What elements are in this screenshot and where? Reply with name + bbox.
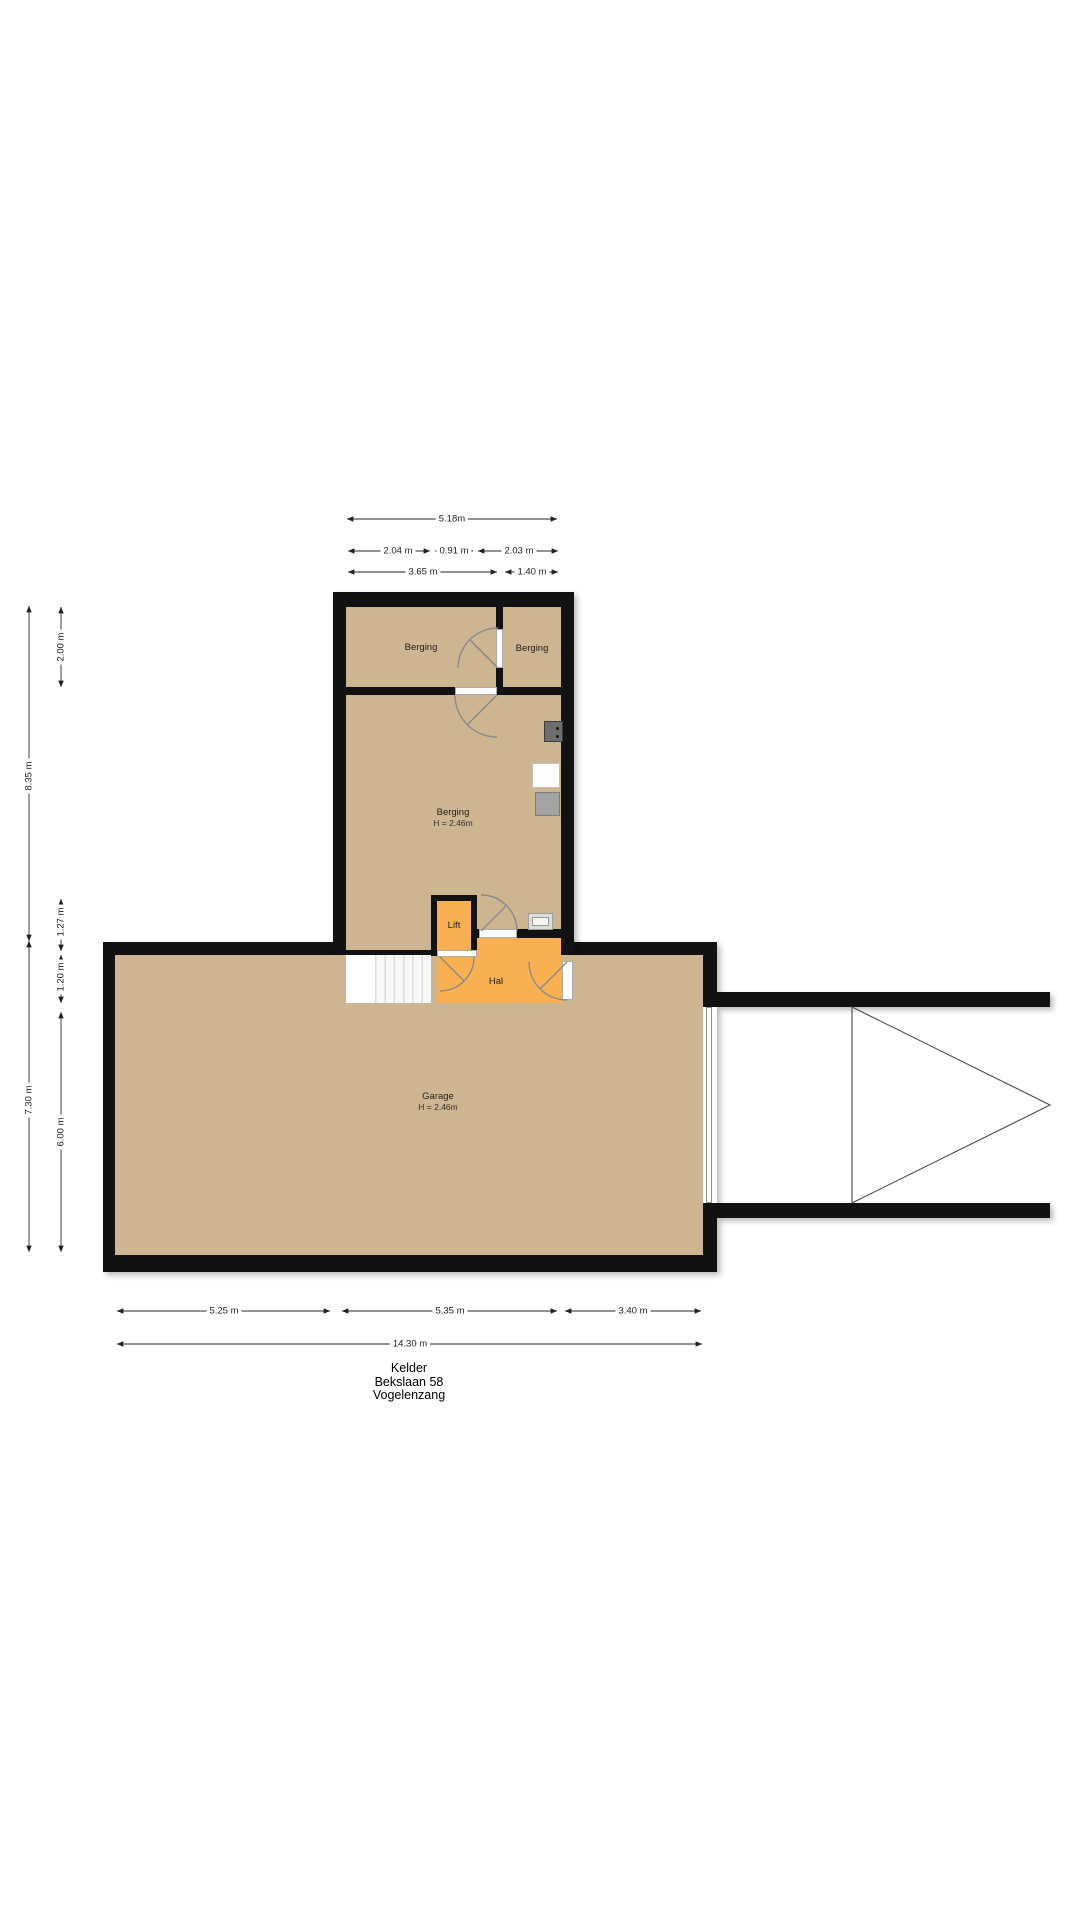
dim-top-c: 2.03 m [501, 546, 536, 557]
door-berging-to-hal [479, 929, 517, 938]
garage-door-panel [706, 1007, 712, 1203]
driveway-wall-top [717, 992, 1050, 1007]
door-lift [437, 950, 477, 957]
room-name: Berging [433, 808, 472, 818]
dim-left-berging-top: 2.00 m [56, 629, 67, 664]
driveway-slope-icon [852, 1007, 1050, 1203]
room-label-garage: Garage H = 2.46m [418, 1092, 457, 1112]
room-label-berging-top-right: Berging [516, 644, 549, 654]
dim-bottom-b: 5.35 m [432, 1306, 467, 1317]
floor-plan-page: 5.18m 2.04 m 0.91 m 2.03 m 3.65 m 1.40 m… [0, 0, 1080, 1920]
dim-left-tower: 8.35 m [24, 758, 35, 793]
dim-top-e: 1.40 m [514, 567, 549, 578]
room-label-berging-top-left: Berging [405, 643, 438, 653]
dim-left-garage-inner: 6.00 m [56, 1114, 67, 1149]
door-hal-right [562, 961, 573, 1000]
dim-bottom-c: 3.40 m [615, 1306, 650, 1317]
plan-title: Kelder Bekslaan 58 Vogelenzang [373, 1362, 445, 1403]
panel-dot [556, 727, 559, 730]
panel-dot [556, 735, 559, 738]
hal-lower-strip-floor [437, 955, 477, 1003]
sink-icon [528, 913, 553, 930]
hal-floor [477, 938, 561, 1003]
room-name: Hal [489, 977, 503, 987]
room-name: Berging [516, 644, 549, 654]
sink-basin [532, 917, 549, 926]
room-name: Berging [405, 643, 438, 653]
dim-bottom-total: 14.30 m [390, 1339, 430, 1350]
dim-left-garage-outer: 7.30 m [24, 1082, 35, 1117]
dim-left-stairs: 1.20 m [56, 959, 67, 994]
plan-title-city: Vogelenzang [373, 1389, 445, 1403]
door-berging-partition [496, 629, 503, 668]
room-name: Garage [418, 1092, 457, 1102]
room-height: H = 2.46m [418, 1102, 457, 1112]
room-name: Lift [448, 921, 461, 931]
plan-title-floor: Kelder [373, 1362, 445, 1376]
driveway-wall-bottom [717, 1203, 1050, 1218]
electric-panel-icon [544, 721, 563, 742]
room-label-hal: Hal [489, 977, 503, 987]
dim-left-lift: 1.27 m [56, 904, 67, 939]
door-berging-main [455, 687, 497, 695]
appliance-white-icon [532, 763, 560, 788]
room-label-lift: Lift [448, 921, 461, 931]
dim-top-b: 0.91 m [436, 546, 471, 557]
room-height: H = 2.46m [433, 818, 472, 828]
stairs [375, 955, 431, 1003]
plan-title-address: Bekslaan 58 [373, 1376, 445, 1390]
room-label-berging-main: Berging H = 2.46m [433, 808, 472, 828]
dim-bottom-a: 5.25 m [206, 1306, 241, 1317]
dim-top-total: 5.18m [436, 514, 468, 525]
dim-top-d: 3.65 m [405, 567, 440, 578]
dim-top-a: 2.04 m [380, 546, 415, 557]
appliance-gray-icon [535, 792, 560, 816]
